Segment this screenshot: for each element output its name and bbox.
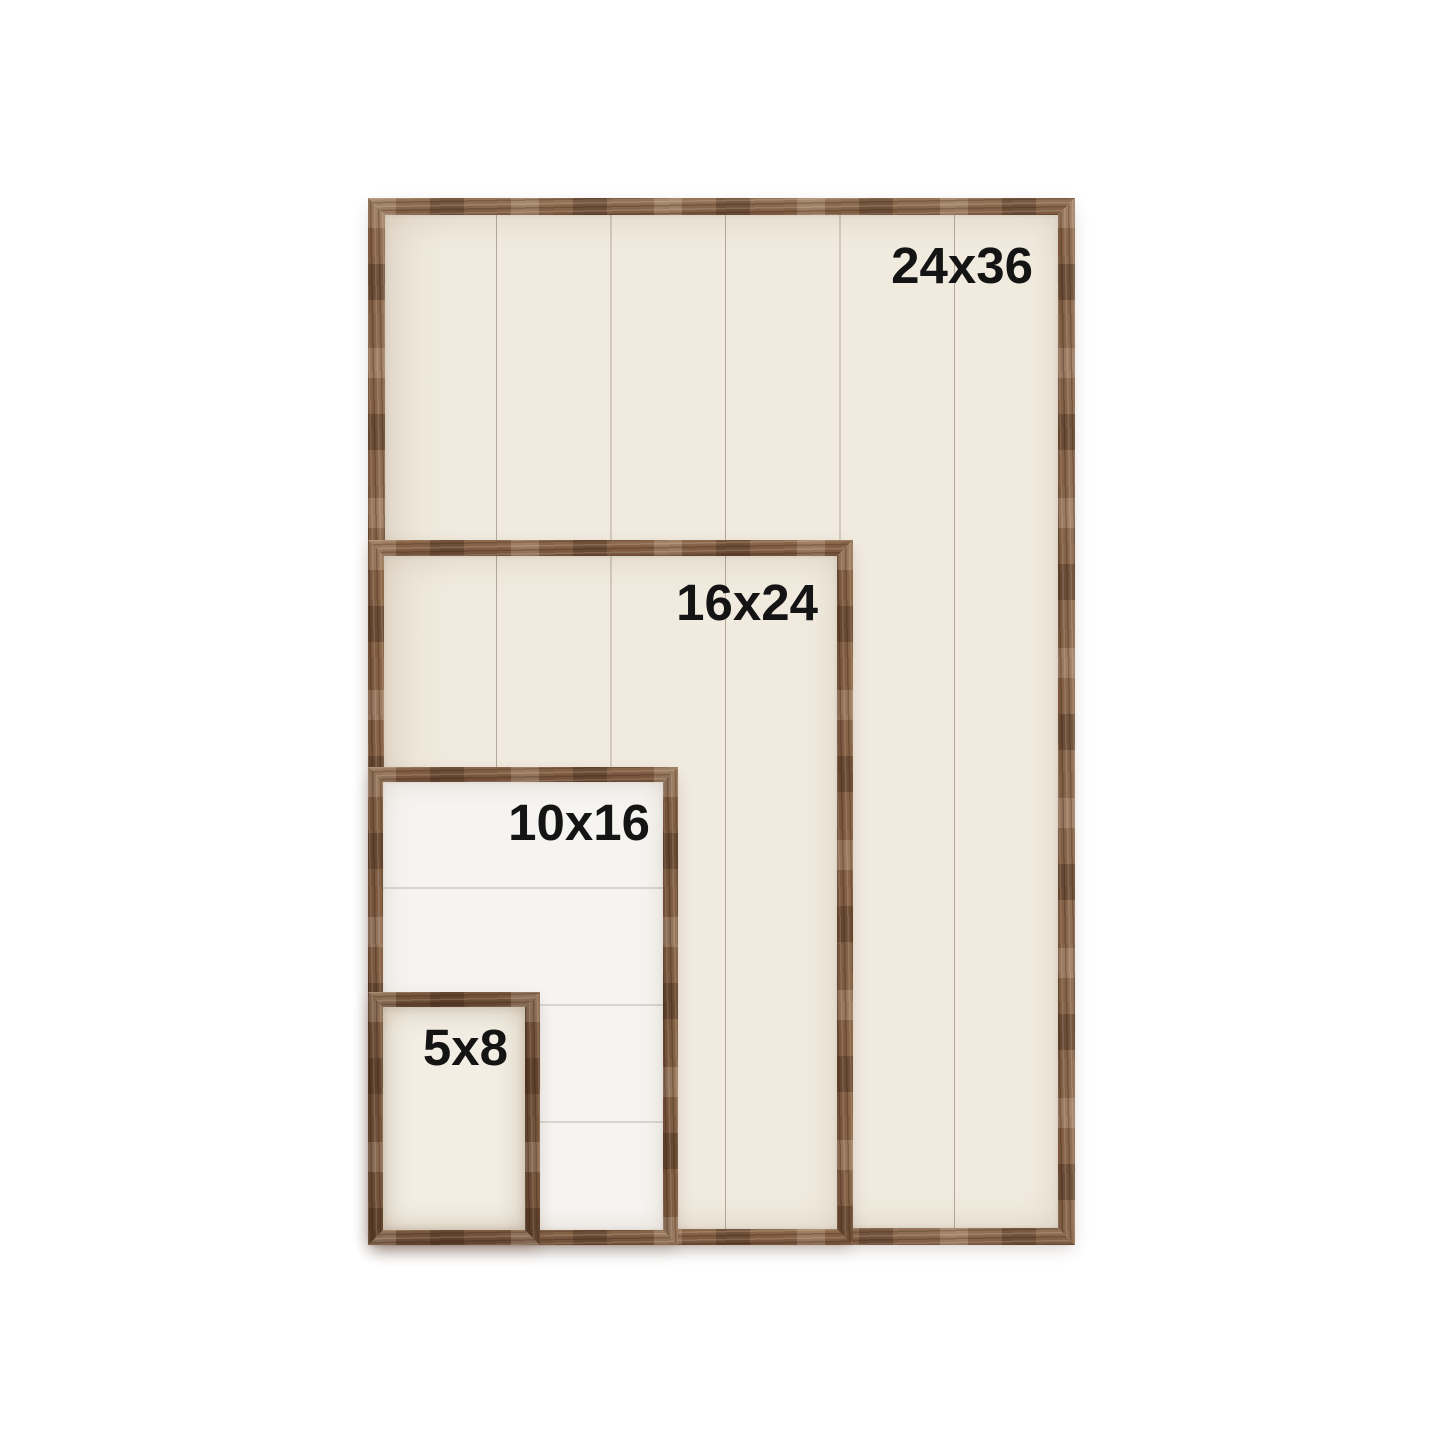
- wood-border-right: [1058, 198, 1075, 1245]
- size-label-16x24: 16x24: [676, 577, 818, 628]
- size-label-10x16: 10x16: [508, 797, 650, 848]
- wood-border-top: [368, 198, 1075, 215]
- size-chart-stage: 24x36 16x24 10x16 5x8: [0, 0, 1445, 1445]
- wood-border-left: [368, 992, 383, 1245]
- frame-5x8: 5x8: [368, 992, 540, 1245]
- size-label-24x36: 24x36: [891, 240, 1033, 291]
- wood-border-top: [368, 540, 853, 556]
- wood-border-right: [837, 540, 853, 1245]
- wood-border-top: [368, 992, 540, 1007]
- size-label-5x8: 5x8: [423, 1022, 508, 1073]
- wood-border-bottom: [368, 1230, 540, 1245]
- wood-border-right: [663, 767, 678, 1245]
- wood-border-right: [525, 992, 540, 1245]
- wood-border-top: [368, 767, 678, 782]
